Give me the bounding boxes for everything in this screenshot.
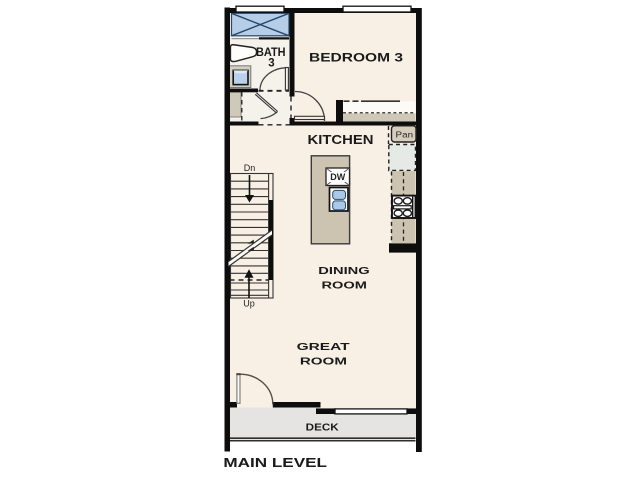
svg-text:DW: DW (330, 172, 345, 182)
svg-text:DECK: DECK (306, 422, 340, 433)
svg-text:Up: Up (243, 299, 255, 309)
svg-text:KITCHEN: KITCHEN (308, 132, 374, 147)
svg-text:ROOM: ROOM (300, 355, 347, 367)
svg-text:MAIN LEVEL: MAIN LEVEL (223, 455, 327, 470)
svg-text:3: 3 (268, 57, 274, 69)
svg-text:Dn: Dn (244, 163, 256, 173)
svg-text:BEDROOM 3: BEDROOM 3 (309, 50, 403, 64)
svg-text:ROOM: ROOM (322, 280, 367, 291)
svg-text:DINING: DINING (318, 266, 369, 277)
svg-text:GREAT: GREAT (297, 341, 351, 353)
svg-text:Pan: Pan (396, 130, 414, 140)
